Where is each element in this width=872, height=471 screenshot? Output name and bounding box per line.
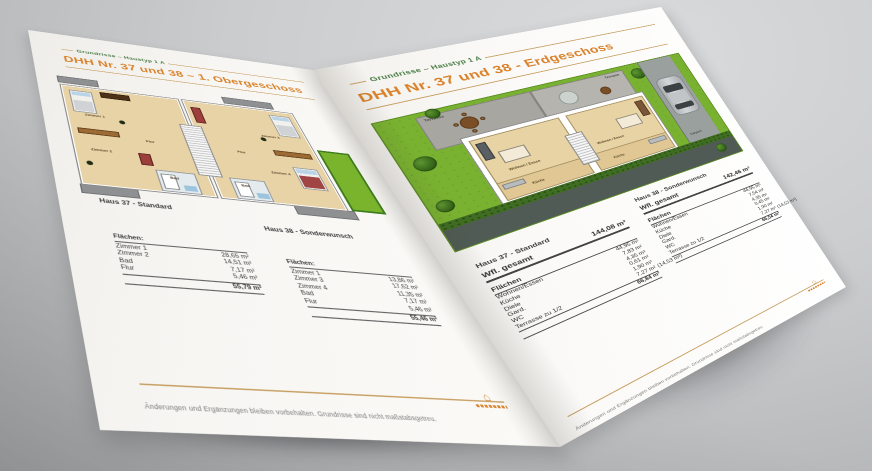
rule-dash [61, 49, 73, 51]
row-label: Flur [120, 265, 135, 274]
chair-icon [471, 129, 478, 134]
row-label: Flur [303, 297, 319, 305]
plant-icon [119, 120, 126, 124]
builder-logo: ⌂ [804, 275, 825, 291]
pillow-shape [71, 91, 90, 97]
kitchen-counter-shape [502, 178, 527, 190]
footer-row: Änderungen und Ergänzungen bleiben vorbe… [140, 388, 523, 432]
room-label: Flur [145, 140, 155, 144]
total-value: 55,79 m² [232, 283, 264, 293]
sofa-shape [475, 142, 496, 161]
shower-shape [256, 193, 271, 200]
room-label: Küche [532, 178, 546, 185]
dresser-shape [138, 153, 154, 166]
car-icon [654, 74, 702, 117]
plant-icon [86, 160, 94, 165]
blanket-shape [276, 125, 299, 137]
wardrobe-shape [190, 107, 207, 124]
sideboard-shape [77, 127, 120, 137]
patio-table-icon [598, 86, 613, 96]
wardrobe-shape [99, 92, 130, 101]
chair-icon [479, 116, 486, 120]
dining-table-shape [615, 113, 643, 129]
house37-caption: Haus 37 - Standard [99, 198, 173, 211]
chair-icon [452, 123, 459, 128]
room-label: Wohnen / Essen [596, 134, 625, 145]
bathroom-area [229, 177, 275, 202]
pillow-shape [271, 116, 290, 122]
pillow-shape [295, 169, 317, 175]
room-label: Zimmer 1 [84, 113, 105, 118]
area-table-haus37: Flächen: Zimmer 128,65 m² Zimmer 214,51 … [113, 233, 265, 294]
blanket-shape [73, 100, 94, 113]
blanket-shape [299, 175, 326, 189]
room-label: Zimmer 4 [270, 171, 291, 176]
room-label: Zimmer 2 [91, 148, 113, 154]
carport-label: Carport [689, 129, 702, 135]
dining-table-shape [497, 144, 531, 163]
page-footer: Änderungen und Ergänzungen bleiben vorbe… [139, 383, 523, 432]
bathroom-area [155, 170, 203, 196]
room-label: Küche [613, 153, 625, 159]
disclaimer-text: Änderungen und Ergänzungen bleiben vorbe… [144, 402, 438, 423]
bed-shape [69, 89, 98, 114]
studio-scene: Grundrisse – Haustyp 1 A DHH Nr. 37 und … [0, 0, 872, 471]
whirlpool-icon [555, 89, 582, 106]
total-value: 55,46 m² [409, 315, 441, 325]
bed-shape [292, 167, 329, 191]
patio-table-icon [457, 115, 482, 131]
sideboard-shape [273, 150, 313, 160]
room-label: Flur [237, 150, 247, 154]
kitchen-counter-shape [648, 135, 668, 145]
house38-caption: Haus 38 - Sonderwunsch [263, 226, 355, 240]
terrace-label: Terrasse [604, 73, 620, 79]
shower-shape [184, 185, 199, 192]
